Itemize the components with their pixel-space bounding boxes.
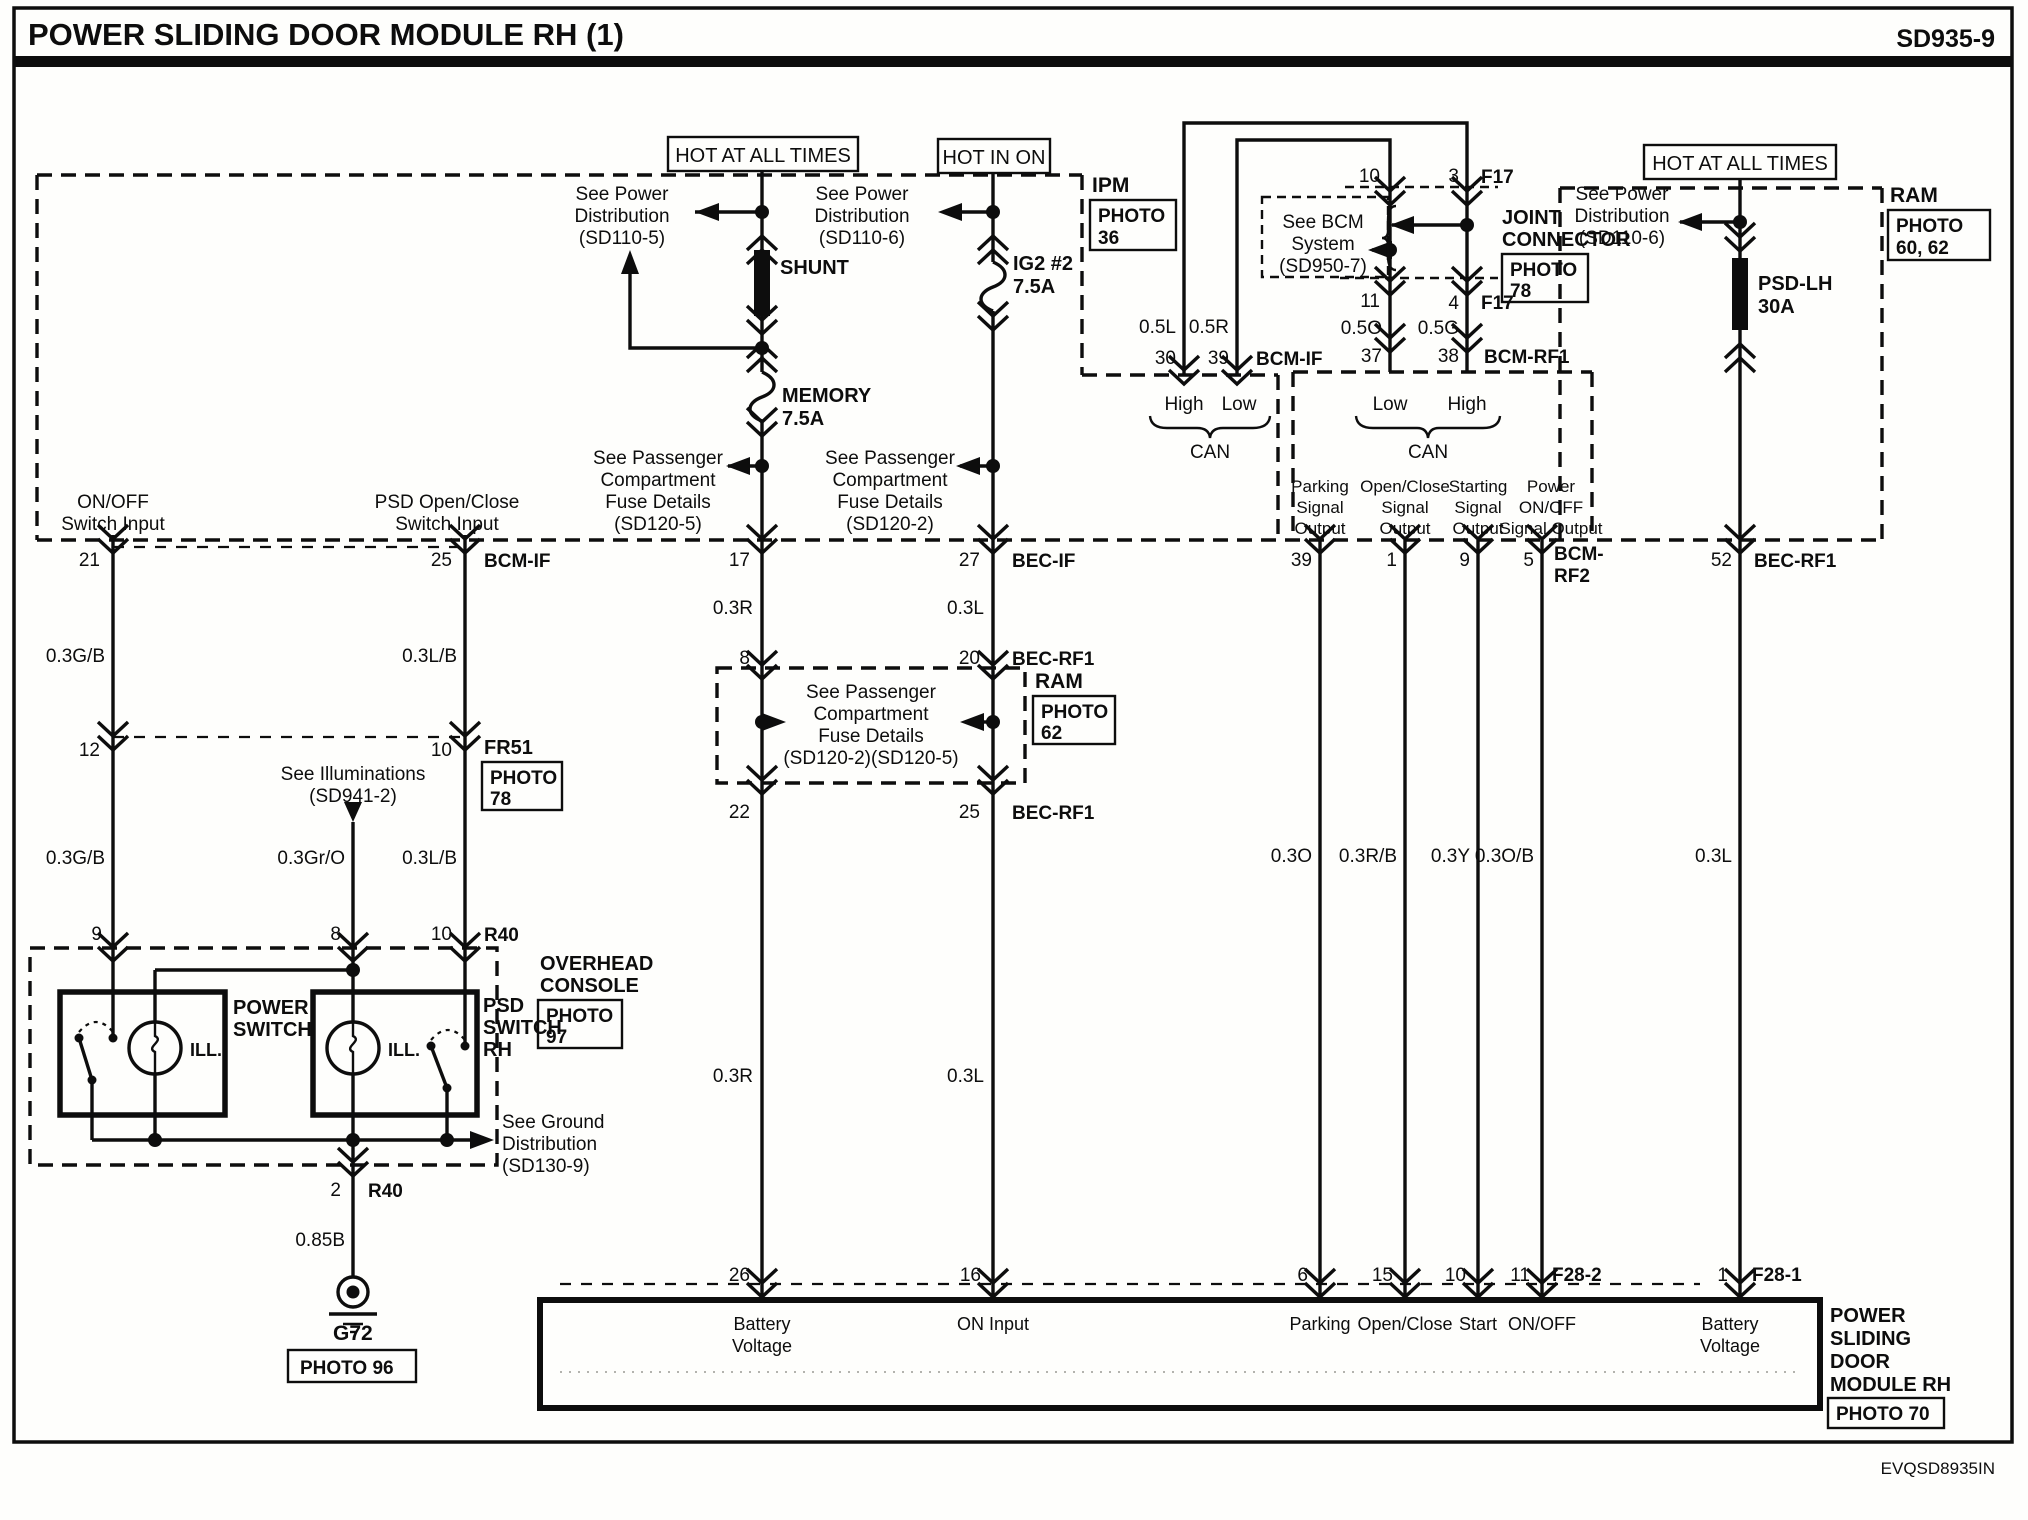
pin-26: 26 [729,1265,750,1286]
ill-label: ILL. [190,1040,222,1060]
ref-line: Distribution [574,206,669,227]
can-high-label: High [1164,394,1203,415]
output-label: Signal Output [1499,519,1602,538]
pin-39: 39 [1291,550,1312,571]
pin-22: 22 [729,802,750,823]
psdlh-fuse: PSD-LH 30A [1732,258,1832,330]
connector-bcm-rf2: RF2 [1554,566,1590,587]
pin-10-f17: 10 [1359,166,1380,187]
module-pin-label: Voltage [1700,1336,1760,1356]
pin-1: 1 [1386,550,1397,571]
see-power-dist-sd110-6-mid: See Power Distribution (SD110-6) [814,184,909,249]
connector-bec-rf1: BEC-RF1 [1012,649,1095,670]
pin-37: 37 [1361,346,1382,367]
ram-mid-badge: RAM PHOTO 62 [1033,670,1115,744]
pin-1: 1 [1717,1265,1728,1286]
doc-code: SD935-9 [1896,25,1995,53]
pin-2: 2 [330,1180,341,1201]
output-label: Parking [1291,477,1349,496]
wire-label: 0.85B [295,1230,345,1251]
pin-8: 8 [739,648,750,669]
pin-labels: 21 25 BCM-IF 17 27 BEC-IF 8 20 BEC-RF1 2… [79,166,1837,1286]
connector-r40: R40 [368,1181,403,1202]
module-name: MODULE RH [1830,1374,1951,1396]
photo-number: 78 [490,789,511,810]
can-right-group: Low High CAN [1356,394,1500,463]
psdlh-rating: 30A [1758,296,1795,318]
onoff-input-label: Switch Input [61,514,165,535]
overhead-console-box-outline [30,948,497,1165]
ram-top-badge: RAM PHOTO 60, 62 [1888,184,1990,260]
ref-line: Compartment [600,470,716,491]
ref-line: Distribution [1574,206,1669,227]
photo-label: PHOTO [1041,702,1108,723]
pin-20: 20 [959,648,980,669]
wire-label: 0.3R [713,1066,753,1087]
wire-label: 0.3G/B [46,848,105,869]
module-pin-label: ON Input [957,1314,1029,1334]
signal-output-labels: Parking Signal Output Open/Close Signal … [1291,477,1603,538]
photo-number: 36 [1098,228,1119,249]
can-high-label: High [1447,394,1486,415]
memory-rating: 7.5A [782,408,824,430]
output-label: Output [1379,519,1430,538]
wiring-diagram-page: POWER SLIDING DOOR MODULE RH (1) SD935-9… [0,0,2028,1520]
memory-label: MEMORY [782,385,872,407]
wiring-diagram: POWER SLIDING DOOR MODULE RH (1) SD935-9… [0,0,2028,1520]
ram-name: RAM [1890,184,1938,207]
output-label: Starting [1449,477,1508,496]
output-label: Power [1527,477,1576,496]
output-label: Open/Close [1360,477,1450,496]
fr51-badge: FR51 PHOTO 78 [482,737,562,810]
pin-5: 5 [1523,550,1534,571]
wire-label: 0.3O [1271,846,1312,867]
pin-12: 12 [79,740,100,761]
pin-27: 27 [959,550,980,571]
output-label: Signal [1381,498,1428,517]
module-name: POWER [1830,1305,1906,1327]
ground-name: G72 [333,1322,373,1345]
connector-bcm-rf2: BCM- [1554,544,1604,565]
pin-10: 10 [431,924,452,945]
shunt-fuse: SHUNT [754,250,849,316]
ig2-label: IG2 #2 [1013,253,1073,275]
module-pin-label: Battery [1701,1314,1758,1334]
overhead-name: OVERHEAD [540,953,653,975]
ipm-name: IPM [1092,174,1129,197]
module-pin-label: Voltage [732,1336,792,1356]
pin-10: 10 [431,740,452,761]
psd-switch-name: PSD [483,995,524,1017]
module-name-badge: POWER SLIDING DOOR MODULE RH PHOTO 70 [1828,1305,1951,1428]
connector-f28-2: F28-2 [1552,1265,1602,1286]
wire-label: 0.5G [1418,318,1459,339]
see-bcm-system: See BCM System (SD950-7) [1279,212,1367,277]
hot-left-label: HOT AT ALL TIMES [675,145,851,167]
joint-name: CONNECTOR [1502,229,1631,251]
output-label: Output [1452,519,1503,538]
can-bus-label: CAN [1190,442,1230,463]
footer-code: EVQSD8935IN [1881,1459,1995,1478]
connector-f17: F17 [1481,167,1514,188]
memory-fuse: MEMORY 7.5A [750,372,872,430]
psd-input-label: PSD Open/Close [375,492,520,513]
connector-bec-if: BEC-IF [1012,551,1075,572]
hot-right-label: HOT AT ALL TIMES [1652,153,1828,175]
module-pin-label: Parking [1289,1314,1350,1334]
ref-line: See Ground [502,1112,604,1133]
pin-9: 9 [1459,550,1470,571]
wire-label: 0.5O [1341,318,1382,339]
hot-in-on: HOT IN ON [938,139,1050,173]
pin-52: 52 [1711,550,1732,571]
wire-label: 0.3L [947,598,984,619]
ref-line: See BCM [1282,212,1363,233]
wire-label: 0.5R [1189,317,1229,338]
pin-25: 25 [431,550,452,571]
ref-line: (SD120-2)(SD120-5) [783,748,958,769]
wire-label: 0.3Y [1431,846,1470,867]
pin-9: 9 [91,924,102,945]
ref-line: See Passenger [825,448,956,469]
wire-label: 0.3L/B [402,646,457,667]
wire-label: 0.3L/B [402,848,457,869]
ref-line: (SD950-7) [1279,256,1367,277]
photo-number: 60, 62 [1896,238,1949,259]
ref-line: See Power [816,184,910,205]
ref-line: See Illuminations [281,764,426,785]
hot-at-all-times-right: HOT AT ALL TIMES [1644,145,1836,179]
pin-39: 39 [1208,348,1229,369]
ram-name: RAM [1035,670,1083,693]
psd-module: Battery Voltage ON Input Parking Open/Cl… [540,1300,1820,1408]
onoff-input-label: ON/OFF [77,492,149,513]
module-name: DOOR [1830,1351,1891,1373]
output-label: Signal [1296,498,1343,517]
power-switch: ILL. POWER SWITCH [60,992,312,1115]
ref-line: See Passenger [806,682,937,703]
connector-r40: R40 [484,925,519,946]
pin-30: 30 [1155,348,1176,369]
ref-line: Fuse Details [837,492,943,513]
power-switch-name: SWITCH [233,1019,312,1041]
wire-label: 0.3R [713,598,753,619]
module-pin-label: Start [1459,1314,1497,1334]
can-low-label: Low [1222,394,1257,415]
output-label: Signal [1454,498,1501,517]
pin-38: 38 [1438,346,1459,367]
ref-line: (SD110-6) [819,228,905,249]
fr51-name: FR51 [484,737,533,759]
ig2-rating: 7.5A [1013,276,1055,298]
connector-bcm-if: BCM-IF [484,551,550,572]
pin-10: 10 [1445,1265,1466,1286]
ref-line: Compartment [813,704,929,725]
ref-line: Compartment [832,470,948,491]
module-pin-label: Open/Close [1357,1314,1452,1334]
can-bus-label: CAN [1408,442,1448,463]
ref-line: (SD120-2) [846,514,934,535]
ipm-badge: IPM PHOTO 36 [1090,174,1176,250]
photo-label: PHOTO 96 [300,1358,394,1379]
ref-line: Fuse Details [818,726,924,747]
ig2-fuse: IG2 #2 7.5A [981,253,1073,311]
connector-f28-1: F28-1 [1752,1265,1802,1286]
can-low-label: Low [1373,394,1408,415]
switch-input-labels: ON/OFF Switch Input PSD Open/Close Switc… [61,492,519,535]
see-pcf-sd120-2: See Passenger Compartment Fuse Details (… [825,448,956,535]
psdlh-label: PSD-LH [1758,273,1832,295]
photo-number: 62 [1041,723,1062,744]
psd-switch-rh: ILL. PSD SWITCH RH [313,992,562,1115]
ref-line: Fuse Details [605,492,711,513]
psd-switch-name: RH [483,1039,512,1061]
ref-line: See Power [576,184,670,205]
ref-line: Distribution [502,1134,597,1155]
ref-line: (SD120-5) [614,514,702,535]
pin-4-f17: 4 [1448,293,1459,314]
connector-bcm-if: BCM-IF [1256,349,1322,370]
photo-label: PHOTO [1510,260,1577,281]
connector-bec-rf1: BEC-RF1 [1012,803,1095,824]
page-title: POWER SLIDING DOOR MODULE RH (1) [28,17,624,52]
pin-8: 8 [330,924,341,945]
psd-switch-name: SWITCH [483,1017,562,1039]
overhead-name: CONSOLE [540,975,639,997]
pin-21: 21 [79,550,100,571]
pin-15: 15 [1372,1265,1393,1286]
hot-mid-label: HOT IN ON [943,147,1046,169]
shunt-label: SHUNT [780,257,849,279]
wire-label: 0.3Gr/O [277,848,345,869]
pin-11: 11 [1510,1265,1530,1286]
wire-label: 0.3L [947,1066,984,1087]
connector-f17: F17 [1481,293,1514,314]
see-pcf-sd120-5: See Passenger Compartment Fuse Details (… [593,448,724,535]
photo-label: PHOTO 70 [1836,1404,1930,1425]
wire-label: 0.3L [1695,846,1732,867]
pin-17: 17 [729,550,750,571]
wire-label: 0.3O/B [1475,846,1534,867]
ref-line: System [1291,234,1354,255]
ref-line: (SD110-5) [579,228,665,249]
connector-bcm-rf1: BCM-RF1 [1484,347,1570,368]
photo-label: PHOTO [490,768,557,789]
psd-input-label: Switch Input [395,514,499,535]
pin-6: 6 [1297,1265,1308,1286]
joint-name: JOINT [1502,207,1561,229]
photo-label: PHOTO [1098,206,1165,227]
output-label: Output [1294,519,1345,538]
see-illuminations: See Illuminations (SD941-2) [281,764,426,807]
ref-line: (SD941-2) [309,786,397,807]
see-power-dist-sd110-5: See Power Distribution (SD110-5) [574,184,669,249]
wire-label: 0.3G/B [46,646,105,667]
ref-line: Distribution [814,206,909,227]
connector-bec-rf1: BEC-RF1 [1754,551,1837,572]
module-name: SLIDING [1830,1328,1911,1350]
can-left-group: High Low CAN [1150,394,1270,463]
ref-line: See Passenger [593,448,724,469]
ill-label: ILL. [388,1040,420,1060]
see-pcf-sd120-2-5: See Passenger Compartment Fuse Details (… [783,682,958,769]
pin-16: 16 [960,1265,981,1286]
wire-label: 0.5L [1139,317,1176,338]
ref-line: (SD130-9) [502,1156,590,1177]
power-switch-name: POWER [233,997,309,1019]
hot-at-all-times-left: HOT AT ALL TIMES [668,137,858,171]
pin-25: 25 [959,802,980,823]
pin-11-f17: 11 [1360,291,1380,312]
photo-label: PHOTO [1896,216,1963,237]
pin-3-f17: 3 [1448,166,1459,187]
module-pin-label: ON/OFF [1508,1314,1576,1334]
module-pin-label: Battery [733,1314,790,1334]
ref-line: See Power [1576,184,1670,205]
see-ground-dist: See Ground Distribution (SD130-9) [502,1112,604,1177]
wire-label: 0.3R/B [1339,846,1397,867]
output-label: ON/OFF [1519,498,1583,517]
